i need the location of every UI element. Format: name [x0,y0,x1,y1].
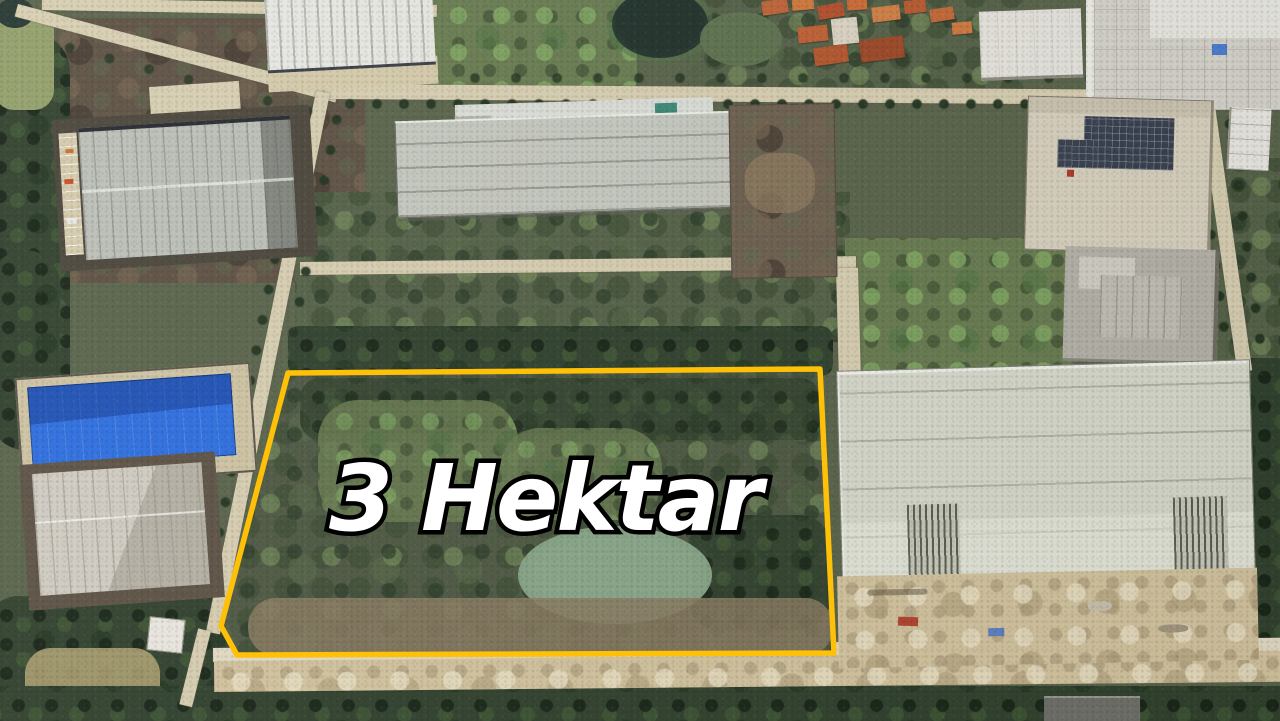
complex-white-section [1150,0,1280,38]
red-container [898,617,918,627]
village-courtyard [831,17,860,46]
aerial-satellite-image: 3 Hektar [0,0,1280,721]
warehouse-big-southeast [837,360,1255,586]
blue-tarp [1212,44,1227,55]
warehouse-gray-roof [32,462,210,596]
village-house [813,44,849,67]
material-pile [1088,601,1112,612]
building-gray-right [1063,246,1220,365]
material-pile [1158,624,1188,633]
warehouse-top-striped [264,0,436,73]
construction-yard [837,568,1259,669]
factory-top-strip [1029,97,1211,118]
rooftop-center-section [1099,275,1183,339]
building-white-topright-small [979,8,1083,81]
truck-red [64,179,73,185]
scrub-right-of-plot [845,238,1073,376]
loading-dock-east [1173,496,1229,571]
factory-solar [1024,96,1214,255]
plot-brown-strip [248,598,833,656]
village-house [903,0,926,14]
truck-white [67,219,77,225]
red-equipment-dot [1067,170,1074,177]
dirt-light-patch [744,152,815,213]
blue-container [988,628,1004,636]
plot-area-label: 3 Hektar [322,448,768,578]
village-house [847,0,868,11]
truck-orange [65,149,73,153]
village-house [952,21,973,35]
building-white-right-edge [1226,107,1271,171]
warehouse-gray-apron [19,451,225,610]
village-house [797,24,829,43]
complex-topright [1086,0,1280,110]
building-bottom-right [1044,696,1140,721]
warehouse-topleft [52,104,319,271]
village-houses [752,0,1012,76]
debris-row [867,589,927,596]
village-house [929,6,955,23]
village-house-large [859,35,905,62]
warehouse-central [395,111,740,219]
village-house [871,4,901,22]
cleared-plot-brown [728,103,837,279]
village-house [792,0,815,11]
solar-panel-array-small [1057,139,1098,168]
tree-row-above-plot [288,326,833,376]
village-house [761,0,789,16]
loading-dock-west [907,503,961,578]
white-shed [146,616,185,654]
